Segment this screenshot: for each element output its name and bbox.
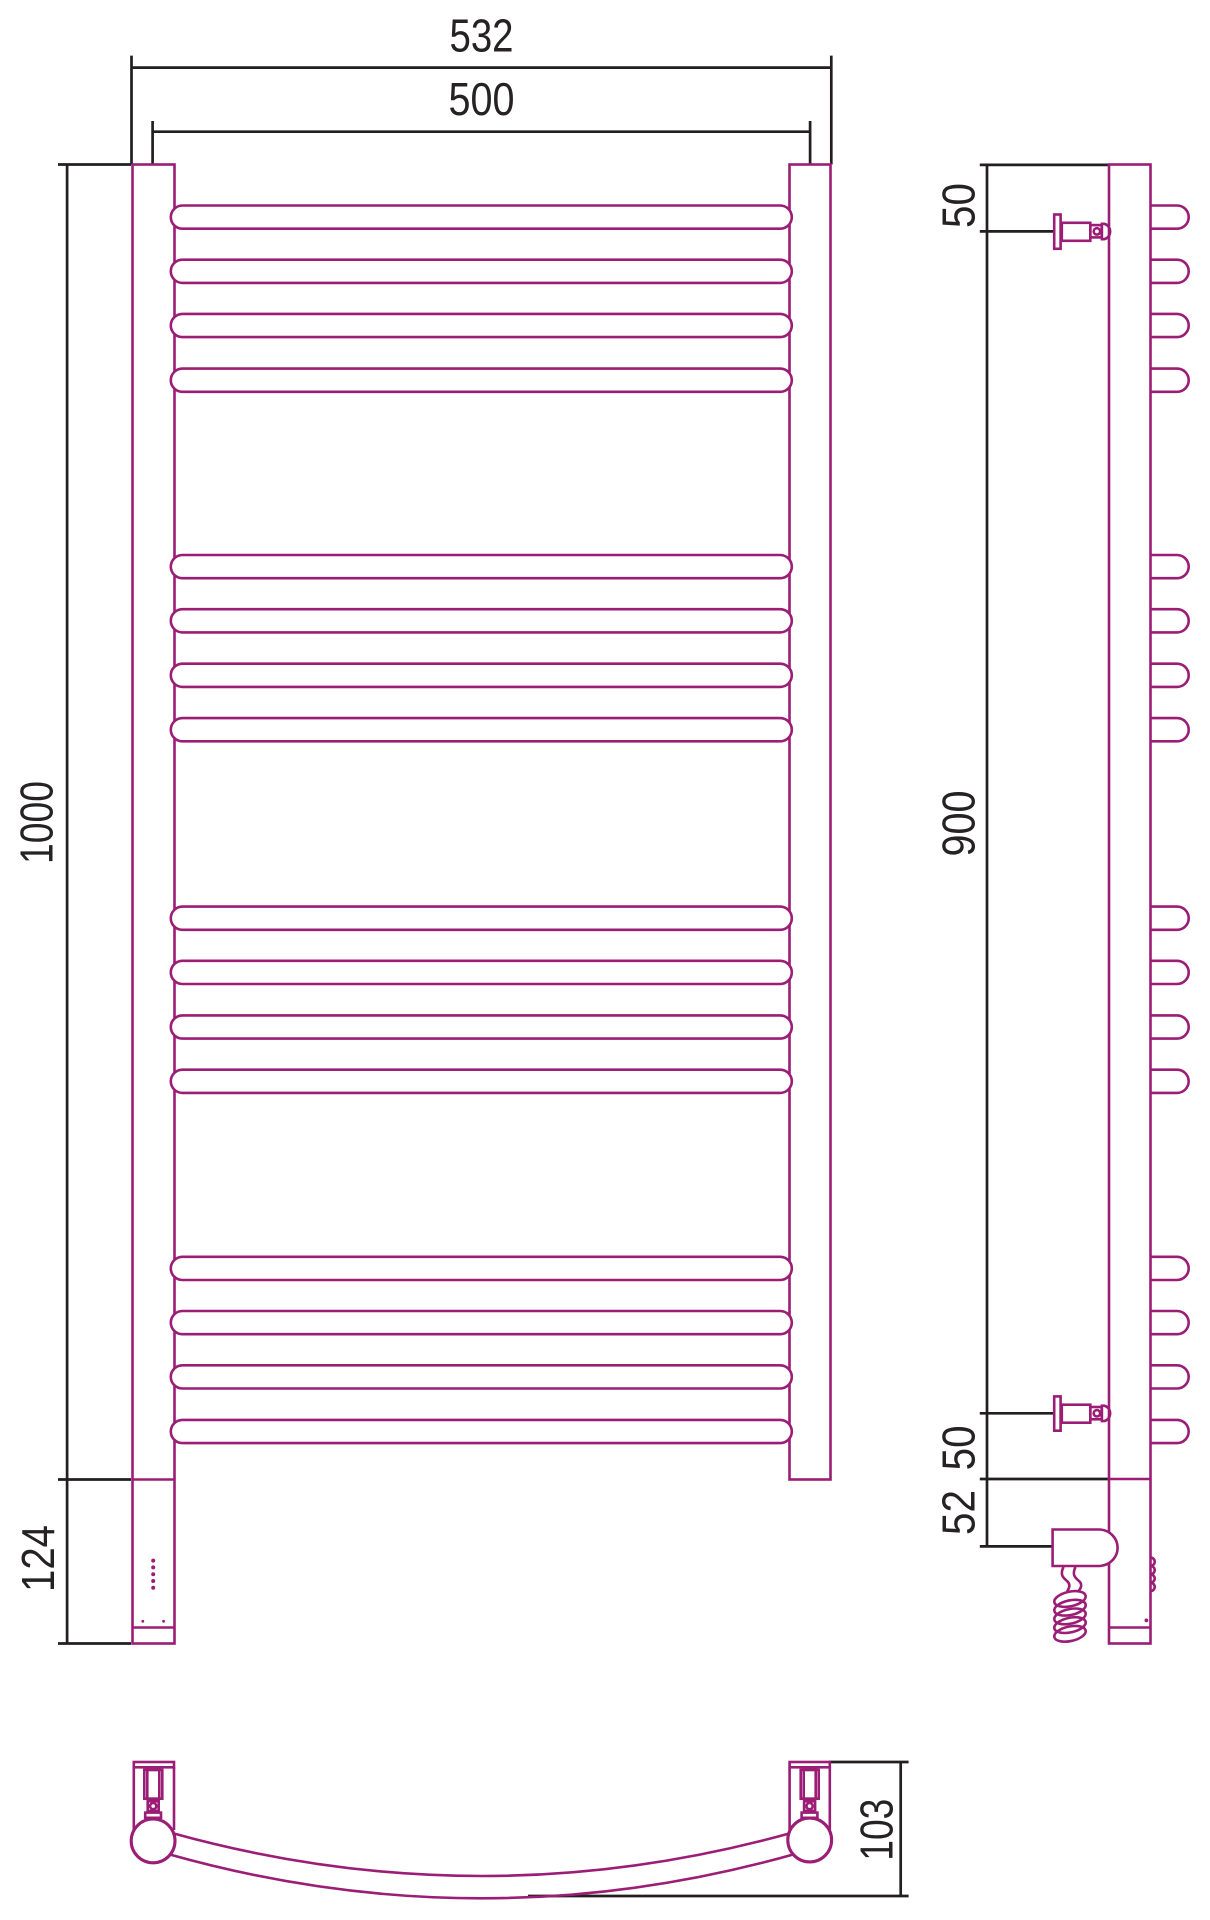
svg-text:124: 124 bbox=[12, 1525, 64, 1592]
svg-text:50: 50 bbox=[933, 183, 985, 228]
svg-text:900: 900 bbox=[933, 791, 985, 857]
svg-text:50: 50 bbox=[933, 1425, 985, 1470]
svg-text:532: 532 bbox=[450, 9, 514, 61]
svg-text:1000: 1000 bbox=[11, 781, 63, 864]
svg-text:52: 52 bbox=[933, 1490, 985, 1535]
svg-text:103: 103 bbox=[851, 1799, 903, 1861]
svg-text:500: 500 bbox=[449, 73, 515, 125]
